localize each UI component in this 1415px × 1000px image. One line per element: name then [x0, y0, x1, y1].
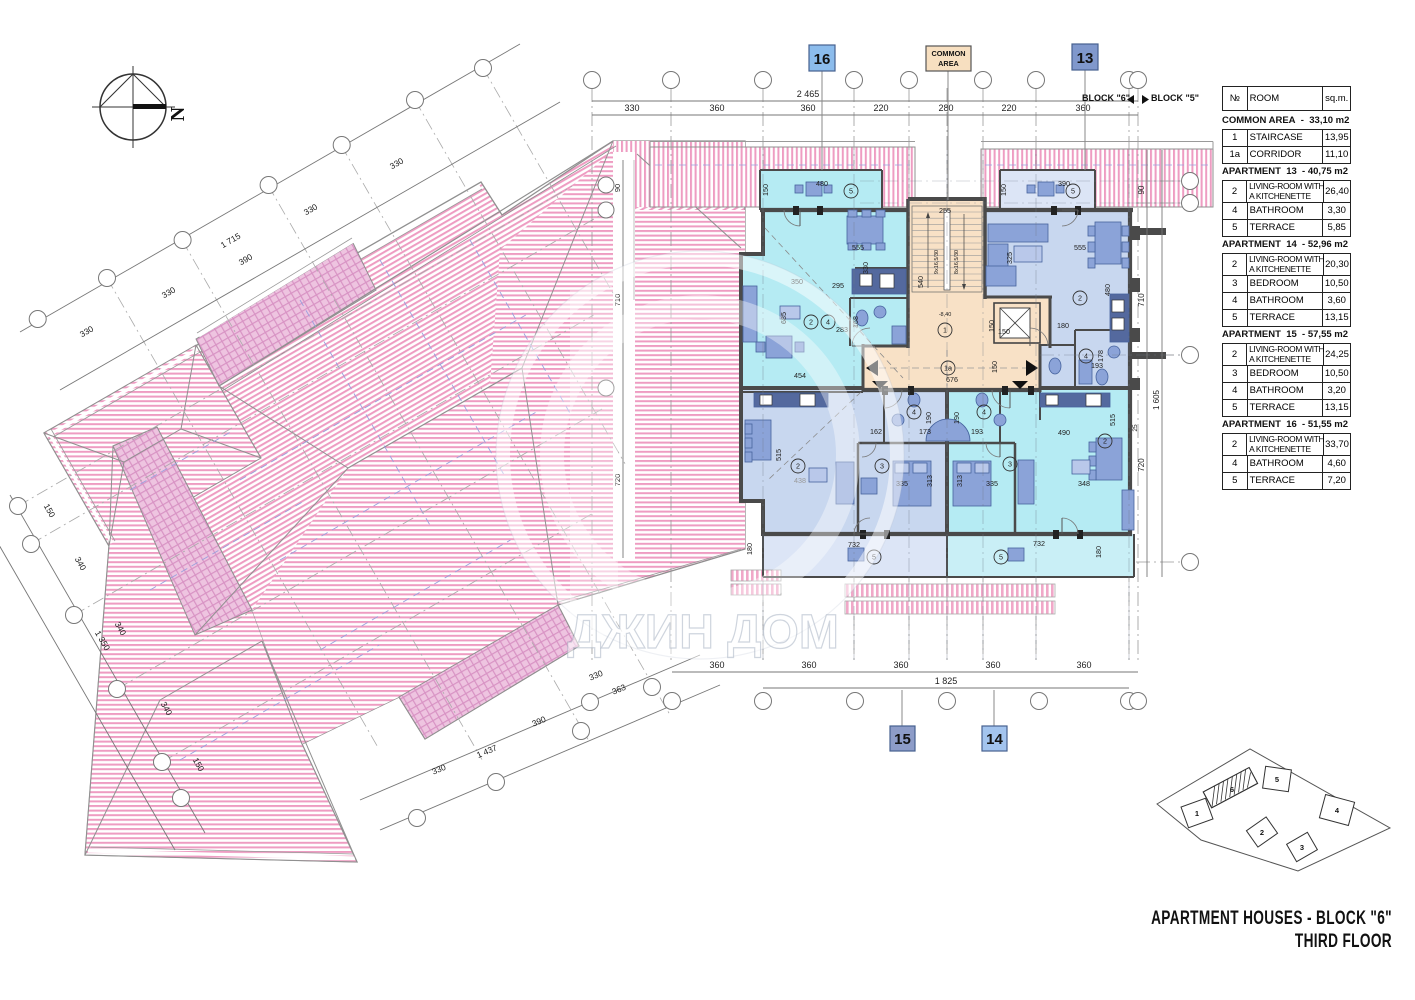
svg-text:2: 2 — [809, 318, 813, 327]
svg-text:335: 335 — [986, 479, 998, 488]
svg-text:-8,40: -8,40 — [939, 312, 952, 318]
svg-text:390: 390 — [1058, 179, 1070, 188]
svg-text:360: 360 — [1075, 103, 1090, 113]
svg-text:280: 280 — [938, 103, 953, 113]
svg-text:150: 150 — [761, 184, 770, 196]
svg-text:325: 325 — [1005, 252, 1014, 264]
svg-text:360: 360 — [709, 660, 724, 670]
svg-text:150: 150 — [990, 361, 999, 373]
svg-text:1: 1 — [943, 326, 947, 335]
svg-text:220: 220 — [873, 103, 888, 113]
svg-text:150: 150 — [998, 327, 1010, 336]
svg-text:295: 295 — [832, 281, 844, 290]
svg-text:360: 360 — [801, 660, 816, 670]
svg-text:732: 732 — [1033, 539, 1045, 548]
svg-text:180: 180 — [1057, 321, 1069, 330]
svg-text:5: 5 — [1275, 775, 1279, 784]
svg-text:3: 3 — [1008, 460, 1012, 469]
svg-text:360: 360 — [709, 103, 724, 113]
svg-text:4: 4 — [1084, 352, 1088, 361]
svg-text:313: 313 — [955, 475, 964, 487]
svg-text:13: 13 — [1077, 50, 1094, 67]
svg-text:193: 193 — [1091, 361, 1103, 370]
svg-text:190: 190 — [952, 412, 961, 424]
svg-text:360: 360 — [1076, 660, 1091, 670]
svg-text:255: 255 — [939, 206, 951, 215]
svg-text:15: 15 — [894, 731, 911, 748]
svg-text:2: 2 — [1078, 294, 1082, 303]
svg-text:480: 480 — [1103, 284, 1112, 296]
svg-text:150: 150 — [999, 184, 1008, 196]
svg-text:720: 720 — [1137, 458, 1146, 472]
svg-text:5: 5 — [1071, 187, 1075, 196]
svg-text:4: 4 — [826, 318, 830, 327]
svg-text:4: 4 — [982, 408, 986, 417]
svg-text:BLOCK "6": BLOCK "6" — [1082, 93, 1130, 103]
svg-text:2: 2 — [1260, 828, 1264, 837]
svg-text:454: 454 — [794, 371, 806, 380]
svg-text:4: 4 — [912, 408, 916, 417]
svg-text:173: 173 — [919, 427, 931, 436]
svg-text:COMMON: COMMON — [931, 49, 965, 58]
svg-text:710: 710 — [1137, 293, 1146, 307]
svg-text:676: 676 — [946, 375, 958, 384]
svg-text:540: 540 — [916, 276, 925, 288]
svg-text:150: 150 — [987, 320, 996, 332]
svg-text:220: 220 — [1001, 103, 1016, 113]
svg-text:438: 438 — [794, 476, 806, 485]
svg-text:330: 330 — [861, 262, 870, 274]
svg-text:162: 162 — [870, 427, 882, 436]
svg-text:490: 490 — [1058, 428, 1070, 437]
svg-text:5: 5 — [849, 187, 853, 196]
svg-text:14: 14 — [986, 731, 1003, 748]
svg-text:BLOCK "5": BLOCK "5" — [1151, 93, 1199, 103]
svg-text:AREA: AREA — [938, 59, 959, 68]
svg-text:N: N — [167, 106, 189, 121]
svg-text:16: 16 — [814, 51, 831, 68]
svg-text:90: 90 — [1137, 185, 1146, 194]
svg-text:6: 6 — [1230, 785, 1234, 794]
svg-text:555: 555 — [1074, 243, 1086, 252]
svg-text:25: 25 — [1132, 424, 1139, 432]
svg-text:732: 732 — [848, 540, 860, 549]
svg-text:2 465: 2 465 — [797, 89, 820, 99]
svg-text:348: 348 — [1078, 479, 1090, 488]
svg-text:5: 5 — [999, 553, 1003, 562]
svg-text:1 605: 1 605 — [1152, 389, 1161, 410]
svg-text:330: 330 — [624, 103, 639, 113]
svg-text:360: 360 — [985, 660, 1000, 670]
svg-text:515: 515 — [1108, 414, 1117, 426]
svg-text:515: 515 — [774, 449, 783, 461]
svg-text:190: 190 — [924, 412, 933, 424]
svg-text:360: 360 — [800, 103, 815, 113]
svg-text:360: 360 — [893, 660, 908, 670]
svg-text:3: 3 — [1300, 843, 1304, 852]
svg-text:1 825: 1 825 — [935, 676, 958, 686]
svg-text:313: 313 — [925, 475, 934, 487]
svg-text:2: 2 — [1103, 437, 1107, 446]
svg-text:ДЖИН ДОМ: ДЖИН ДОМ — [567, 606, 839, 659]
svg-text:193: 193 — [971, 427, 983, 436]
svg-text:180: 180 — [1094, 546, 1103, 558]
svg-text:9x16,5/30: 9x16,5/30 — [934, 250, 940, 274]
svg-text:8x16,5/30: 8x16,5/30 — [954, 250, 960, 274]
svg-text:3: 3 — [880, 462, 884, 471]
svg-text:180: 180 — [745, 543, 754, 555]
svg-text:480: 480 — [816, 179, 828, 188]
svg-text:1: 1 — [1195, 809, 1199, 818]
svg-text:2: 2 — [796, 462, 800, 471]
svg-text:555: 555 — [852, 243, 864, 252]
svg-text:1a: 1a — [944, 364, 952, 373]
